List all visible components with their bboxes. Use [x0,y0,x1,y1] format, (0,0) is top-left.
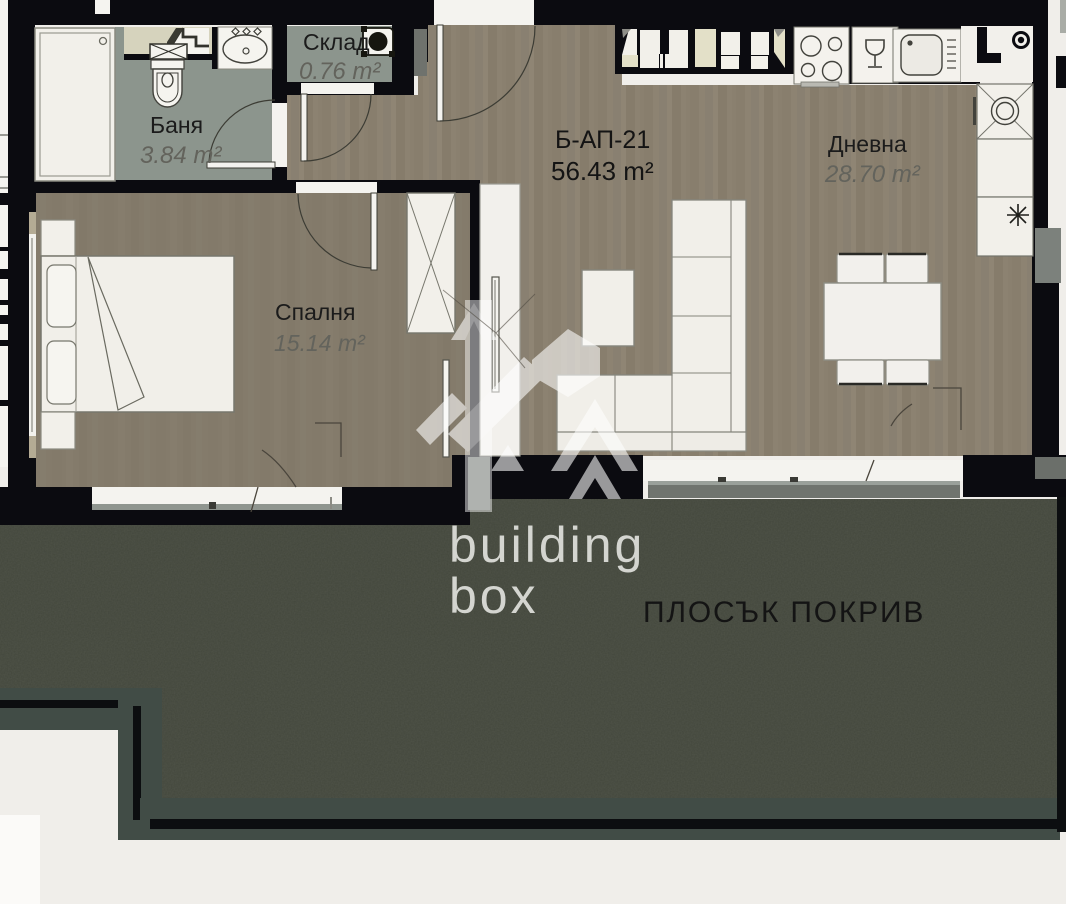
svg-text:Б-АП-21: Б-АП-21 [555,126,650,154]
svg-text:Дневна: Дневна [828,131,907,157]
svg-text:56.43 m²: 56.43 m² [551,156,654,186]
svg-text:Склад: Склад [303,29,370,55]
svg-text:box: box [449,568,539,624]
svg-text:28.70 m²: 28.70 m² [824,161,921,188]
svg-text:building: building [449,517,645,573]
svg-text:15.14 m²: 15.14 m² [274,330,366,356]
svg-text:ПЛОСЪК ПОКРИВ: ПЛОСЪК ПОКРИВ [643,596,925,629]
svg-text:Баня: Баня [150,112,203,138]
svg-text:Спалня: Спалня [275,299,355,325]
svg-text:3.84 m²: 3.84 m² [140,142,222,169]
svg-text:0.76 m²: 0.76 m² [299,58,381,85]
